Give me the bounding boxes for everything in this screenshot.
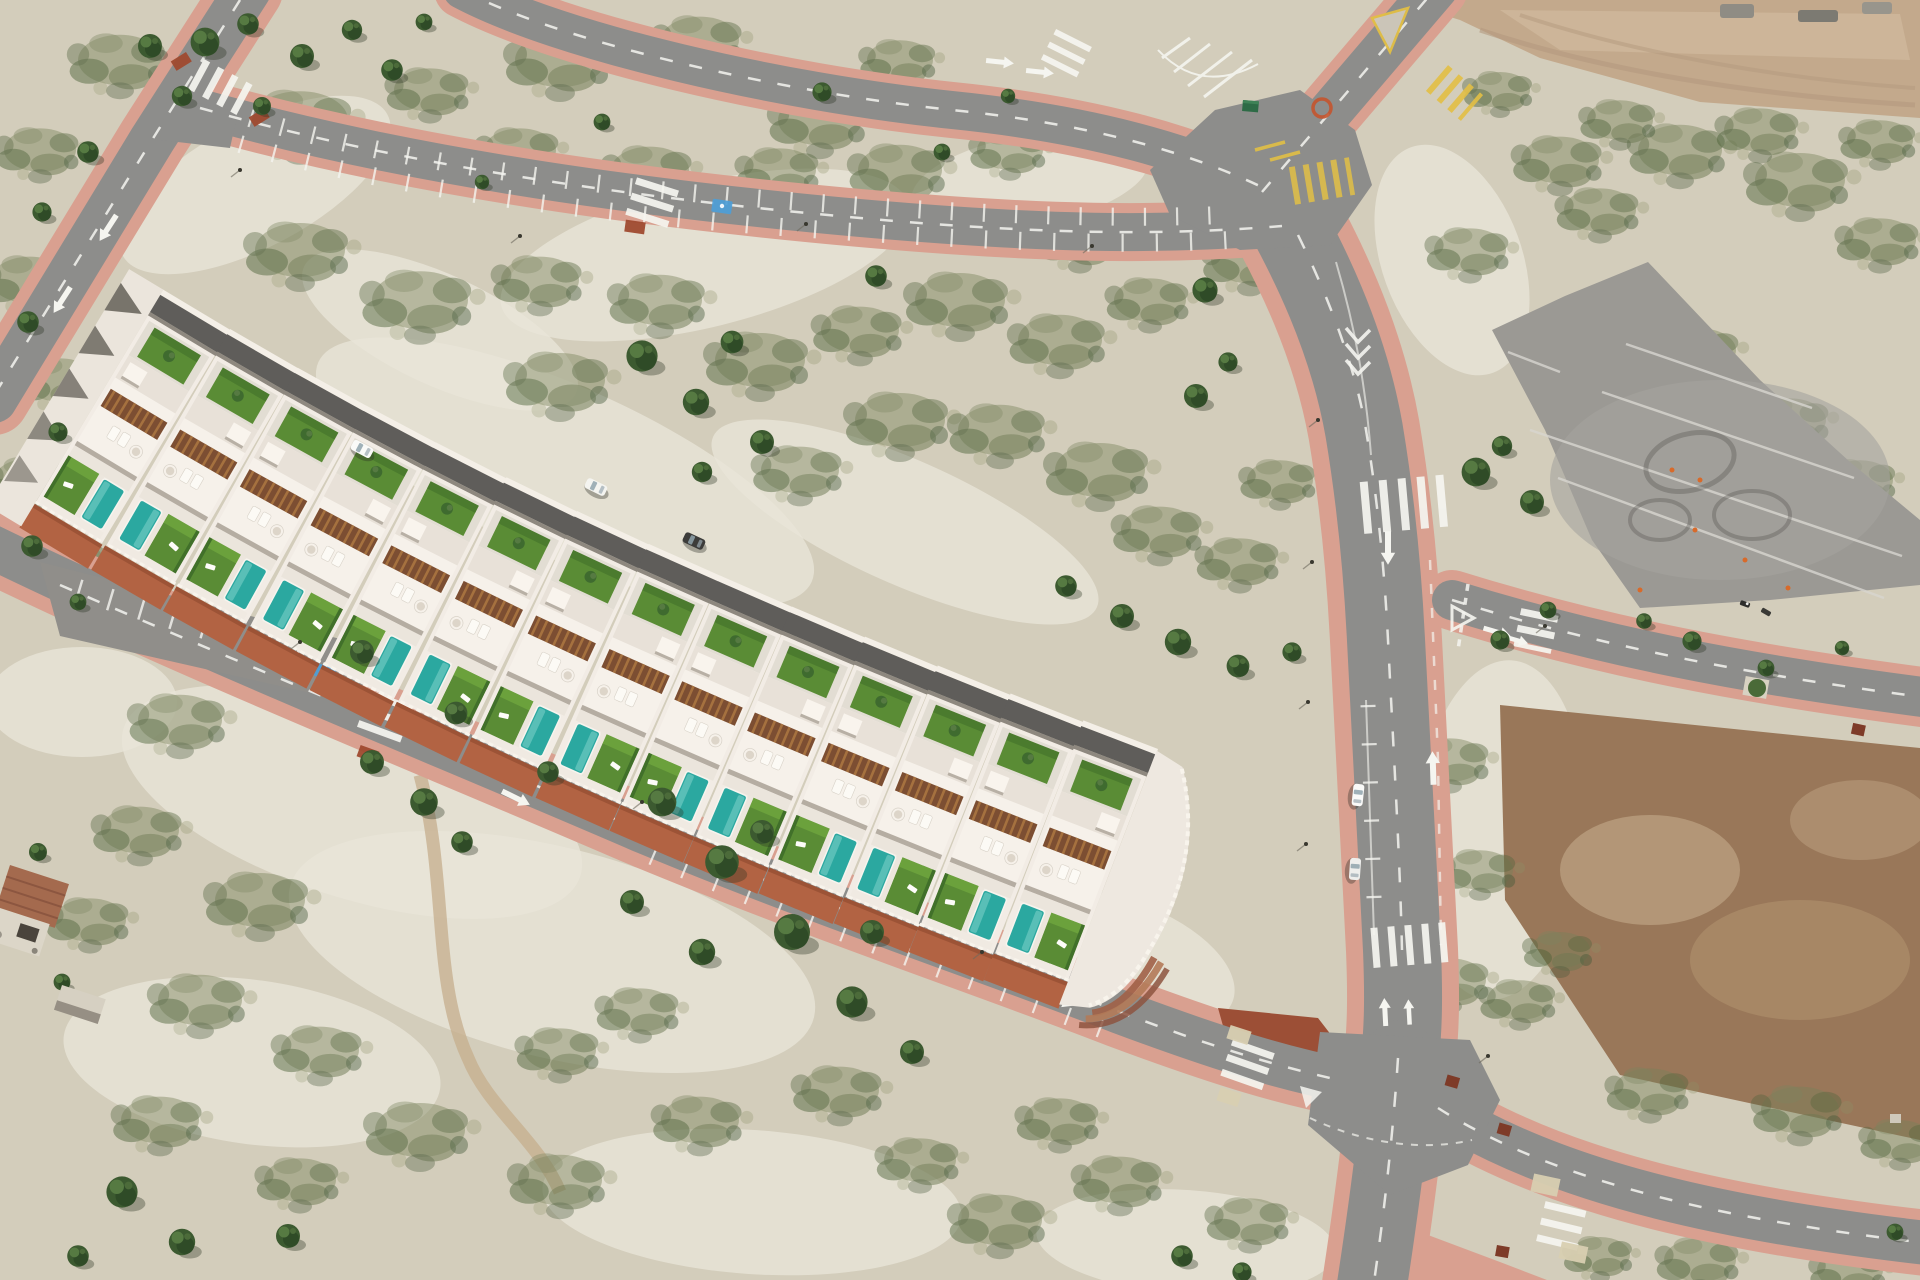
site-container — [1242, 100, 1259, 112]
aerial-photo — [0, 0, 1920, 1280]
utility-cabinet — [1890, 1114, 1901, 1123]
